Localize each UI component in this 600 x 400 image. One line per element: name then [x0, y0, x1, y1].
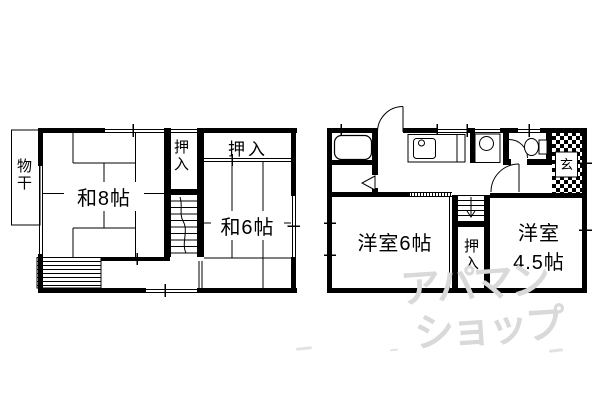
bathroom-door-triangle [362, 176, 375, 190]
back-door [378, 107, 404, 133]
hall-door [491, 164, 519, 192]
closet-label-oshiire-2f: 押入 [173, 139, 188, 173]
toilet-icon [525, 139, 548, 156]
right-plan-windows [437, 130, 540, 133]
sliding-partition-hatch [410, 193, 452, 197]
room-label-yoshitsu45-line1: 洋室 [497, 217, 581, 246]
kitchen-counter-icon [408, 135, 465, 163]
veranda-hatch [37, 258, 101, 289]
washing-machine-icon [475, 134, 500, 163]
watermark-line2: ショップ [412, 291, 564, 359]
room-label-monohoshi: 物干 [16, 158, 31, 192]
bathtub-icon [335, 136, 372, 160]
room-label-yoshitsu6: 洋室6帖 [348, 227, 442, 256]
floorplan-image: 物干 押入 押入 和8帖 和6帖 洋室6帖 洋室 4.5帖 押入 玄 アパマン … [0, 0, 600, 400]
room-label-washitsu8: 和8帖 [64, 182, 144, 211]
room-label-washitsu6: 和6帖 [211, 211, 284, 240]
stairs-path-line [180, 197, 186, 253]
closet-label-oshiire-top: 押入 [226, 135, 270, 160]
genkan-label: 玄 [556, 153, 577, 176]
